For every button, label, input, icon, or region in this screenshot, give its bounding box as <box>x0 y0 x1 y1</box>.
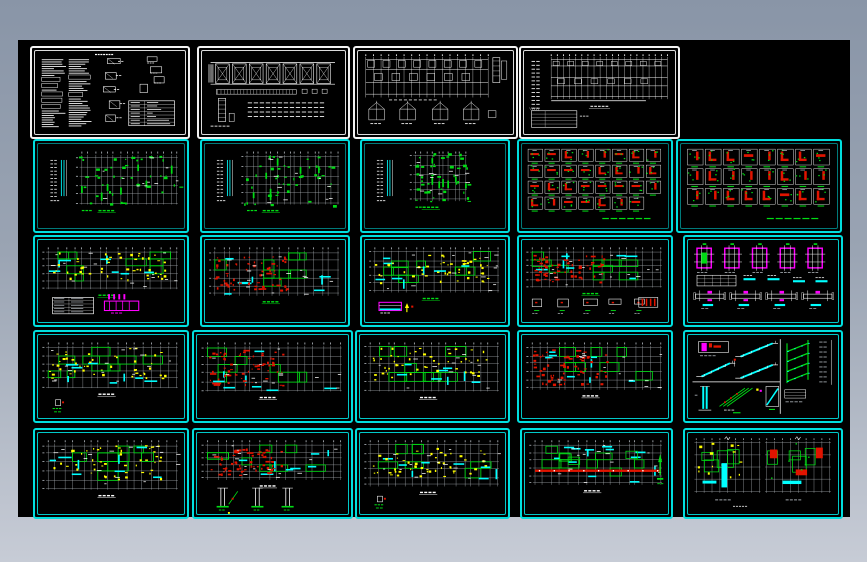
panel-frame-r2c3 <box>364 143 506 229</box>
details-grid-drawing <box>522 144 668 228</box>
notes-sheet-drawing <box>35 51 185 134</box>
floor-plan-drawing <box>360 433 505 514</box>
floor-plan-drawing <box>205 240 345 322</box>
floor-plan-drawing <box>522 240 668 322</box>
panel-frame-r5c1 <box>37 432 185 515</box>
panel-frame-r4c2 <box>196 334 349 419</box>
floor-plan-drawing <box>38 335 184 418</box>
panel-column-detail-grid-2 <box>676 139 842 233</box>
panel-frame-r2c2 <box>204 143 346 229</box>
roof-plans-drawing <box>688 433 838 514</box>
floor-plan-drawing <box>38 240 184 322</box>
panel-foundation-plan-sheet <box>519 46 680 139</box>
panel-frame-r3c4 <box>521 239 669 323</box>
panel-beam-plan-2 <box>200 235 350 327</box>
floor-plan-drawing <box>38 144 184 228</box>
floor-plan-drawing <box>205 144 345 228</box>
panel-stair-detail-sheet <box>683 330 843 423</box>
panel-frame-r1c1 <box>34 50 186 135</box>
column-details-drawing <box>688 240 838 322</box>
panel-beam-plan-5 <box>33 330 189 423</box>
panel-roof-plan-sheet <box>683 428 843 519</box>
panel-roof-structure-sheet <box>197 46 350 139</box>
floor-plan-drawing <box>38 433 184 514</box>
panel-frame-r4c3 <box>359 334 506 419</box>
panel-frame-r2c1 <box>37 143 185 229</box>
cad-preview-page <box>0 0 867 562</box>
foundation-plan-drawing <box>358 51 513 134</box>
panel-beam-plan-4 <box>517 235 673 327</box>
panel-column-layout-plan-3 <box>360 139 510 233</box>
panel-frame-r3c2 <box>204 239 346 323</box>
panel-frame-r4c5 <box>687 334 839 419</box>
floor-plan-drawing <box>525 433 668 514</box>
floor-plan-drawing <box>360 335 505 418</box>
panel-foundation-detail-sheet <box>353 46 518 139</box>
floor-plan-drawing <box>197 335 348 418</box>
panel-general-notes-sheet <box>30 46 190 139</box>
panel-footing-detail-sheet <box>683 235 843 327</box>
truss-plan-drawing <box>202 51 345 134</box>
panel-frame-r3c3 <box>364 239 506 323</box>
panel-frame-r1c2 <box>201 50 346 135</box>
floor-plan-drawing <box>365 240 505 322</box>
panel-frame-r1c3 <box>357 50 514 135</box>
stair-details-drawing <box>688 335 838 418</box>
panel-frame-r5c4 <box>524 432 669 515</box>
panel-frame-r4c4 <box>521 334 669 419</box>
panel-frame-r4c1 <box>37 334 185 419</box>
foundation-plan-b-drawing <box>524 51 675 134</box>
panel-frame-r3c5 <box>687 239 839 323</box>
panel-frame-r2c5 <box>680 143 838 229</box>
floor-plan-drawing <box>197 433 348 514</box>
panel-beam-plan-1 <box>33 235 189 327</box>
panel-frame-r5c5 <box>687 432 839 515</box>
panel-beam-plan-6 <box>192 330 353 423</box>
panel-frame-r1c4 <box>523 50 676 135</box>
panel-beam-plan-8 <box>517 330 673 423</box>
details-grid-drawing <box>681 144 837 228</box>
panel-slab-plan-4 <box>520 428 673 519</box>
panel-beam-plan-3 <box>360 235 510 327</box>
panel-slab-plan-2 <box>192 428 353 519</box>
panel-slab-plan-3 <box>355 428 510 519</box>
panel-frame-r5c3 <box>359 432 506 515</box>
floor-plan-drawing <box>365 144 505 228</box>
model-space-canvas <box>18 40 850 517</box>
panel-column-detail-grid-1 <box>517 139 673 233</box>
panel-column-layout-plan-1 <box>33 139 189 233</box>
panel-column-layout-plan-2 <box>200 139 350 233</box>
panel-frame-r2c4 <box>521 143 669 229</box>
floor-plan-drawing <box>522 335 668 418</box>
panel-frame-r5c2 <box>196 432 349 515</box>
panel-frame-r3c1 <box>37 239 185 323</box>
panel-beam-plan-7 <box>355 330 510 423</box>
panel-slab-plan-1 <box>33 428 189 519</box>
